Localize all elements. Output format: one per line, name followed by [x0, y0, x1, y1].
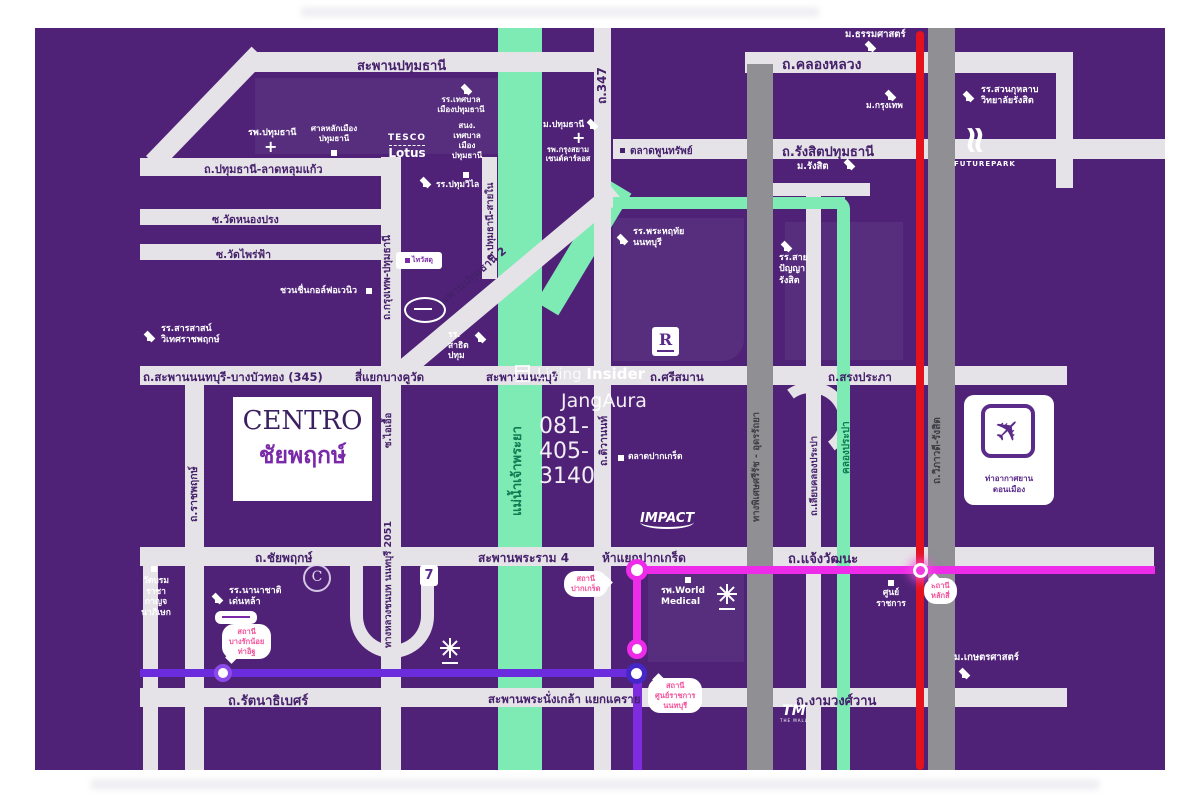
- landmark-talat-phunsap: ตลาดพูนทรัพย์: [630, 144, 693, 159]
- viphavadi-band: [928, 28, 955, 770]
- road-label-chaiyapruek: ถ.ชัยพฤกษ์: [255, 549, 312, 568]
- road-label-ngamwongwan: ถ.งามวงศ์วาน: [796, 690, 876, 711]
- landmark-chuan-chuen-golf: ชวนชื่นกอล์ฟอเวนิว: [280, 286, 357, 297]
- lotus-text: Lotus: [388, 147, 426, 160]
- school-icon: [143, 330, 159, 342]
- bubble-station-pak-kret: สถานี ปากเกร็ด: [564, 571, 608, 597]
- futurepark-icon: ≈: [954, 124, 998, 156]
- landmark-suan-kularb: รร.สวนกุหลาบ วิทยาลัยรังสิต: [981, 85, 1038, 108]
- station-gov-center: [626, 663, 647, 684]
- market-marker: [618, 455, 624, 461]
- oval-store-logo: [404, 297, 446, 323]
- landmark-city-pillar: ศาลหลักเมือง ปทุมธานี: [305, 124, 363, 144]
- road-label-347: ถ.347: [593, 67, 612, 104]
- flower-script: [442, 662, 458, 664]
- tesco-text: TESCO: [388, 134, 426, 144]
- road-label-soi-ai-uea: ซ.ไอเอื้อ: [381, 413, 396, 448]
- place-marker: [331, 150, 337, 156]
- school-icon: [884, 89, 900, 101]
- place-marker: [366, 288, 372, 294]
- landmark-denla: รร.นานาชาติ เด่นหล้า: [229, 586, 282, 609]
- chao-phraya-river: [498, 28, 542, 770]
- landmark-school-thetsaban: รร.เทศบาล เมืองปทุมธานี: [430, 95, 492, 115]
- landmark-gov-complex: ศูนย์ ราชการ: [873, 588, 909, 609]
- road-label-nong-prong: ซ.วัดหนองปรง: [212, 211, 279, 228]
- flower-logo: [440, 638, 460, 658]
- c-circle-logo: C: [303, 564, 331, 592]
- road-label-rattanathibet: ถ.รัตนาธิเบศร์: [228, 690, 308, 711]
- landmark-wat-borom: วัดบรม ราชา กาญจ นาภิเษก: [134, 576, 178, 619]
- landmark-office-thetsaban: สนง. เทศบาล เมือง ปทุมธานี: [446, 121, 488, 161]
- don-mueang-airport-card: ✈ ท่าอากาศยาน ดอนเมือง: [964, 395, 1054, 505]
- landmark-bangkok-u: ม.กรุงเทพ: [866, 101, 903, 112]
- tesco-lotus-logo: TESCO Lotus: [388, 134, 426, 160]
- landmark-talat-pak-kret: ตลาดปากเกร็ด: [628, 452, 682, 463]
- landmark-sarasas: รร.สารสาสน์ วิเทศราชพฤกษ์: [161, 324, 220, 347]
- landmark-kasetsart: ม.เกษตรศาสตร์: [954, 652, 1019, 664]
- road-rangsit-pathumthani: [613, 139, 1165, 159]
- tollway-red-line: [916, 31, 924, 770]
- living-insider-cube-icon: [515, 365, 530, 382]
- school-icon: [474, 331, 490, 343]
- seven-number: 7: [424, 568, 433, 583]
- airport-label: ท่าอากาศยาน ดอนเมือง: [964, 473, 1054, 495]
- denla-logo-box: [215, 611, 257, 624]
- road-label-tiwanon: ถ.ติวานนท์: [595, 416, 612, 466]
- landmark-sai-panya: รร.สาย ปัญญา รังสิต: [779, 253, 808, 287]
- location-map: สะพานปทุมธานี ถ.คลองหลวง ถ.รังสิตปทุมธาน…: [0, 0, 1200, 811]
- c-letter: C: [312, 569, 323, 585]
- hospital-cross-icon: +: [572, 130, 585, 146]
- station-pink-south: [627, 639, 647, 659]
- road-ratchapruek: [185, 366, 204, 770]
- road-label-rural-2051: ทางหลวงชนบท นนทบุรี 2051: [381, 521, 396, 648]
- watermark-phone: 081-405-3140: [539, 414, 595, 489]
- school-icon: [460, 83, 476, 95]
- hospital-cross-icon: +: [264, 139, 277, 155]
- landmark-phra-haruethai: รร.พระหฤทัย นนทบุรี: [633, 227, 684, 250]
- flower-logo: [717, 584, 737, 604]
- mrt-purple-line-south: [633, 675, 642, 770]
- road-label-srisaman: ถ.ศรีสมาน: [650, 369, 704, 387]
- canal-label-khlong-prapa: คลองประปา: [839, 421, 854, 474]
- road-label-rama4: สะพานพระราม 4: [478, 549, 569, 568]
- landmark-pathum-wilai: รร.ปทุมวิไล: [436, 180, 479, 191]
- road-label-latlumkaeo: ถ.ปทุมธานี-ลาดหลุมแก้ว: [204, 160, 323, 178]
- station-lak-si: [913, 563, 928, 578]
- landmark-krungsiam-hospital: รพ.กรุงสยาม เซนต์คาร์ลอส: [540, 145, 596, 164]
- school-icon: [843, 158, 859, 170]
- road-label-viphavadi: ถ.วิภาวดี-รังสิต: [930, 417, 945, 484]
- the-mall-text: THE MALL: [780, 719, 808, 723]
- place-marker: [151, 566, 157, 572]
- airport-frame: ✈: [981, 404, 1035, 458]
- road-label-srirat-expressway: ทางพิเศษศรีรัช - อุดรรัถยา: [749, 412, 764, 522]
- station-bang-rak-noi: [214, 664, 232, 682]
- watermark-brand: Living Insider: [537, 365, 645, 383]
- the-mall-tm: TM: [780, 704, 808, 718]
- school-icon: [864, 40, 880, 52]
- centro-project-box: CENTRO ชัยพฤกษ์: [233, 397, 372, 501]
- road-label-rangsit-pathumthani: ถ.รังสิตปทุมธานี: [782, 141, 874, 162]
- the-mall-logo: TM THE MALL: [780, 704, 808, 723]
- school-icon: [780, 240, 796, 252]
- school-icon: [958, 667, 974, 679]
- scan-artifact-bottom: [90, 779, 1100, 790]
- thaiwatsadu-text: ไทวัสดุ: [412, 255, 433, 266]
- river-label-chao-phraya: แม่น้ำเจ้าพระยา: [506, 426, 527, 516]
- road-label-krungthep-pathumthani: ถ.กรุงเทพ-ปทุมธานี: [380, 235, 395, 320]
- market-marker: [620, 148, 625, 153]
- school-icon: [616, 233, 632, 245]
- impact-logo: IMPACT: [640, 511, 694, 529]
- thaiwatsadu-logo: ไทวัสดุ: [396, 252, 442, 269]
- khlong-prapa: [837, 197, 850, 770]
- airplane-icon: ✈: [985, 407, 1031, 453]
- road-label-song-prapha: ถ.สรงประภา: [828, 369, 892, 387]
- school-icon: [419, 176, 435, 188]
- school-icon: [962, 90, 978, 102]
- place-marker: [463, 172, 469, 178]
- city-block: [648, 567, 744, 662]
- road-label-liap-khlong-prapa: ถ.เลียบคลองประปา: [807, 436, 822, 516]
- mrt-pink-line: [640, 566, 1155, 574]
- road-label-saphan-pathumthani: สะพานปทุมธานี: [357, 55, 446, 76]
- project-name-th: ชัยพฤกษ์: [233, 438, 372, 474]
- seven-logo: 7: [420, 565, 438, 586]
- road-label-ratchapruek: ถ.ราชพฤกษ์: [185, 466, 202, 522]
- bubble-station-lak-si: สถานี หลักสี่: [924, 578, 957, 604]
- road-label-chaengwattana: ถ.แจ้งวัฒนะ: [788, 548, 858, 569]
- road-connector-northeast: [1056, 52, 1073, 188]
- landmark-world-medical: รพ.World Medical: [661, 586, 705, 609]
- flower-script: [719, 608, 735, 610]
- project-name-en: CENTRO: [233, 406, 372, 436]
- bubble-station-gov-center: สถานี ศูนย์ราชการ นนทบุรี: [648, 678, 702, 713]
- place-marker: [685, 577, 691, 583]
- watermark-name: JangAura: [561, 390, 647, 412]
- landmark-rangsit-u: ม.รังสิต: [797, 161, 829, 173]
- bubble-station-bang-rak-noi: สถานี บางรักน้อย ท่าอิฐ: [222, 624, 271, 659]
- place-marker: [888, 580, 894, 586]
- road-label-phra-nangklao: สะพานพระนั่งเกล้า แยกแคราย: [488, 691, 641, 709]
- khlong-prapa-arm: [613, 197, 845, 209]
- station-pak-kret: [626, 559, 648, 581]
- brand-living: Living: [537, 365, 582, 383]
- road-label-bang-khu-wat: สี่แยกบางคูวัด: [355, 369, 424, 387]
- road-label-khlong-luang: ถ.คลองหลวง: [782, 54, 862, 76]
- scan-artifact-top: [300, 7, 820, 17]
- brand-insider: Insider: [586, 365, 645, 383]
- robinson-r: R: [659, 332, 672, 348]
- school-icon: [211, 592, 227, 604]
- road-label-phrai-fa: ซ.วัดไพร่ฟ้า: [216, 246, 271, 263]
- school-icon: [586, 118, 602, 130]
- robinson-logo: R: [652, 327, 679, 356]
- road-label-345: ถ.สะพานนนทบุรี-บางบัวทอง (345): [143, 369, 323, 387]
- futurepark-logo: FUTUREPARK: [954, 160, 1016, 168]
